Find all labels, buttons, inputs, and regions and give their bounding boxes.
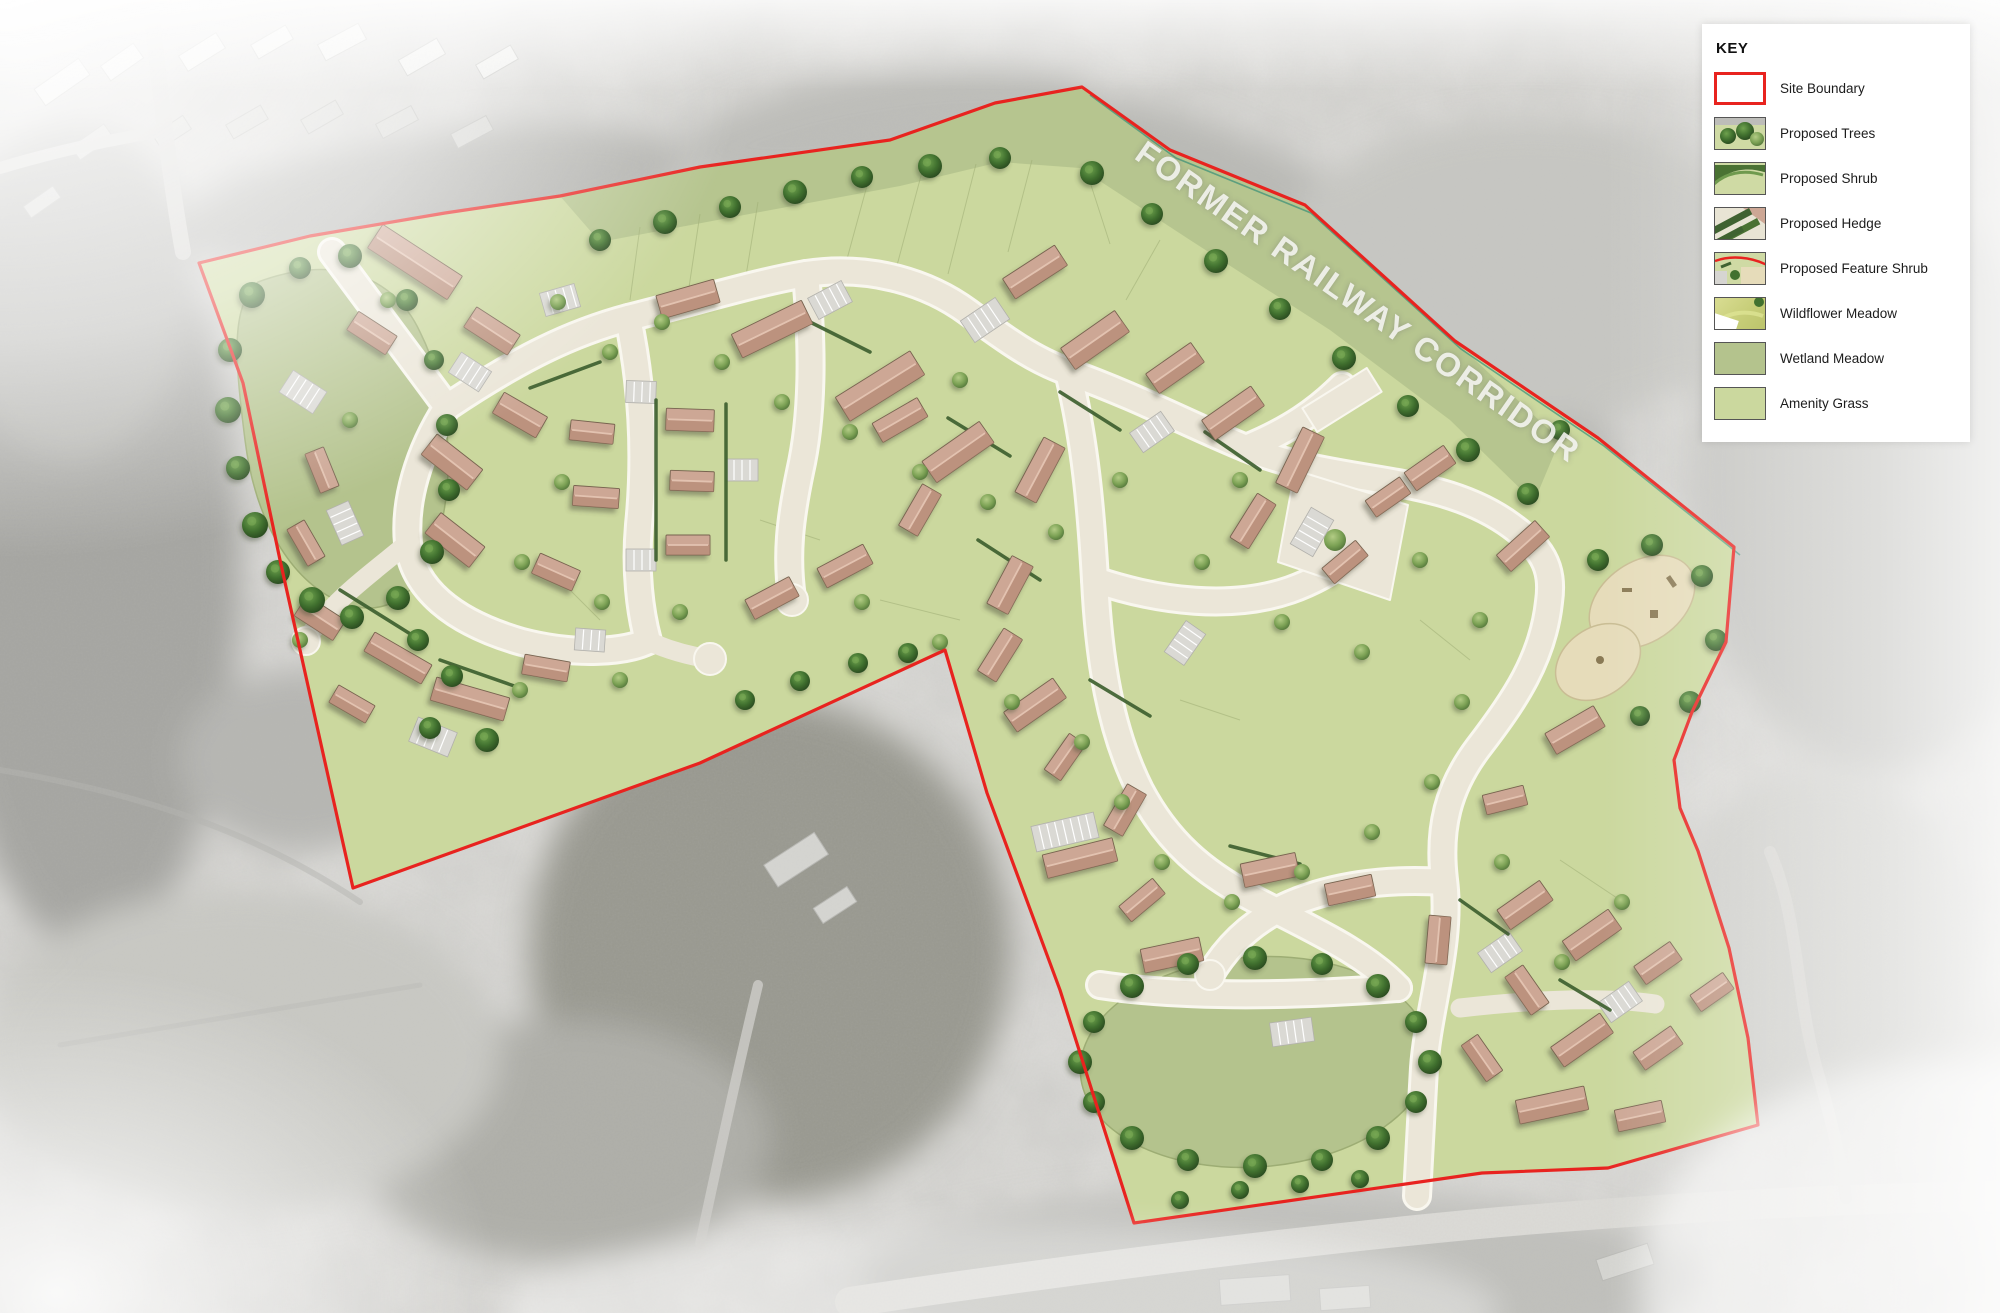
feature-tree — [386, 586, 410, 610]
site-boundary-swatch — [1714, 72, 1766, 105]
feature-tree — [1311, 1149, 1333, 1171]
street-tree — [1112, 472, 1128, 488]
proposed-feature-shrub-swatch — [1714, 252, 1766, 285]
site-plan-svg — [0, 0, 2000, 1313]
street-tree — [612, 672, 628, 688]
feature-tree — [1366, 974, 1390, 998]
street-tree — [980, 494, 996, 510]
feature-tree — [848, 653, 868, 673]
courtyard-tree — [1324, 529, 1346, 551]
street-tree — [1472, 612, 1488, 628]
street-tree — [952, 372, 968, 388]
legend-label: Proposed Shrub — [1780, 171, 1878, 186]
feature-tree — [1243, 1154, 1267, 1178]
legend-label: Proposed Trees — [1780, 126, 1875, 141]
feature-tree — [790, 671, 810, 691]
street-tree — [1454, 694, 1470, 710]
amenity-grass-swatch — [1714, 387, 1766, 420]
legend-label: Site Boundary — [1780, 81, 1865, 96]
street-tree — [1364, 824, 1380, 840]
feature-tree — [1080, 161, 1104, 185]
legend-entry-site-boundary: Site Boundary — [1714, 71, 1960, 105]
feature-tree — [1366, 1126, 1390, 1150]
street-tree — [854, 594, 870, 610]
street-tree — [1224, 894, 1240, 910]
legend-entry-wildflower-meadow: Wildflower Meadow — [1714, 296, 1960, 330]
feature-tree — [1141, 203, 1163, 225]
feature-tree — [1418, 1050, 1442, 1074]
feature-tree — [918, 154, 942, 178]
feature-tree — [735, 690, 755, 710]
wetland-meadow-swatch — [1714, 342, 1766, 375]
house — [1425, 915, 1451, 965]
feature-tree — [1456, 438, 1480, 462]
street-tree — [1494, 854, 1510, 870]
feature-tree — [441, 665, 463, 687]
feature-tree — [1243, 946, 1267, 970]
proposed-trees-swatch — [1714, 117, 1766, 150]
feature-tree — [1177, 1149, 1199, 1171]
street-tree — [842, 424, 858, 440]
legend-entry-proposed-feature-shrub: Proposed Feature Shrub — [1714, 251, 1960, 285]
street-tree — [932, 634, 948, 650]
feature-tree — [475, 728, 499, 752]
street-tree — [1048, 524, 1064, 540]
street-tree — [1424, 774, 1440, 790]
site-plan-canvas: FORMER RAILWAY CORRIDOR KEY Site Boundar… — [0, 0, 2000, 1313]
legend-label: Wetland Meadow — [1780, 351, 1884, 366]
feature-tree — [1405, 1011, 1427, 1033]
feature-tree — [266, 560, 290, 584]
feature-tree — [1397, 395, 1419, 417]
feature-tree — [419, 717, 441, 739]
feature-tree — [851, 166, 873, 188]
feature-tree — [1332, 346, 1356, 370]
feature-tree — [340, 605, 364, 629]
feature-tree — [1120, 1126, 1144, 1150]
legend-label: Wildflower Meadow — [1780, 306, 1897, 321]
legend-title: KEY — [1716, 40, 1960, 57]
street-tree — [1194, 554, 1210, 570]
legend-entry-wetland-meadow: Wetland Meadow — [1714, 341, 1960, 375]
feature-tree — [1204, 249, 1228, 273]
feature-tree — [407, 629, 429, 651]
street-tree — [1274, 614, 1290, 630]
feature-tree — [1291, 1175, 1309, 1193]
street-tree — [1114, 794, 1130, 810]
legend-label: Amenity Grass — [1780, 396, 1869, 411]
street-tree — [774, 394, 790, 410]
proposed-shrub-swatch — [1714, 162, 1766, 195]
street-tree — [1074, 734, 1090, 750]
street-tree — [1154, 854, 1170, 870]
street-tree — [1412, 552, 1428, 568]
feature-tree — [1269, 298, 1291, 320]
legend-entry-proposed-hedge: Proposed Hedge — [1714, 206, 1960, 240]
street-tree — [1232, 472, 1248, 488]
street-tree — [672, 604, 688, 620]
street-tree — [1554, 954, 1570, 970]
feature-tree — [1083, 1011, 1105, 1033]
street-tree — [1004, 694, 1020, 710]
feature-tree — [1120, 974, 1144, 998]
feature-tree — [783, 180, 807, 204]
feature-tree — [1405, 1091, 1427, 1113]
legend-panel: KEY Site Boundary Proposed Trees Propose… — [1702, 24, 1970, 442]
street-tree — [912, 464, 928, 480]
feature-tree — [989, 147, 1011, 169]
legend-entry-proposed-shrub: Proposed Shrub — [1714, 161, 1960, 195]
legend-entry-amenity-grass: Amenity Grass — [1714, 386, 1960, 420]
feature-tree — [1231, 1181, 1249, 1199]
wildflower-meadow-swatch — [1714, 297, 1766, 330]
feature-tree — [299, 587, 325, 613]
street-tree — [1354, 644, 1370, 660]
feature-tree — [1351, 1170, 1369, 1188]
parking-court — [574, 628, 605, 652]
street-tree — [512, 682, 528, 698]
street-tree — [594, 594, 610, 610]
street-tree — [1294, 864, 1310, 880]
feature-tree — [1311, 953, 1333, 975]
legend-label: Proposed Hedge — [1780, 216, 1881, 231]
legend-entry-proposed-trees: Proposed Trees — [1714, 116, 1960, 150]
feature-tree — [1517, 483, 1539, 505]
feature-tree — [1177, 953, 1199, 975]
feature-tree — [1171, 1191, 1189, 1209]
proposed-hedge-swatch — [1714, 207, 1766, 240]
legend-label: Proposed Feature Shrub — [1780, 261, 1928, 276]
feature-tree — [898, 643, 918, 663]
